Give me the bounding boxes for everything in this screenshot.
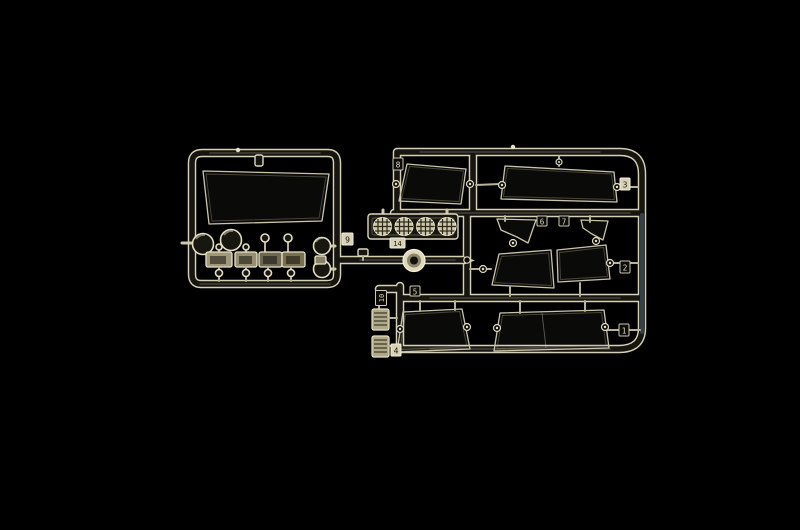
vent-window-right <box>581 220 608 240</box>
gate-boss <box>614 184 621 191</box>
lower-window-right <box>494 310 609 351</box>
part-tag-4-label: 4 <box>394 347 399 356</box>
gate-boss <box>393 181 400 188</box>
lamp-lower-stems <box>216 267 295 281</box>
spotlight-lens <box>417 218 435 236</box>
spotlight-lens <box>374 218 392 236</box>
headlight-lens <box>221 230 242 251</box>
part-tag-5: 5 <box>410 286 420 297</box>
part-tag-14-label: 14 <box>393 240 401 248</box>
part-tag-1-label: 1 <box>622 327 627 336</box>
gate-nub <box>511 145 515 149</box>
sprue-photo: 9 14 8 6 7 3 2 1 <box>0 0 800 530</box>
lamp-pin <box>216 244 222 250</box>
lower-window-left <box>397 309 470 352</box>
windshield-pane <box>203 171 329 224</box>
door-window-left <box>492 250 554 288</box>
part-tag-6: 6 <box>537 216 547 227</box>
lamp-lens-core <box>286 256 300 264</box>
part-tag-9-label: 9 <box>345 236 350 245</box>
top-gate-tab <box>255 155 263 166</box>
lamp-lens-core <box>263 256 277 264</box>
part-tag-7-label: 7 <box>562 218 567 227</box>
left-frame-parts <box>182 155 335 281</box>
gate-boss <box>602 324 609 331</box>
part-tag-7: 7 <box>559 216 569 227</box>
ribbed-lens <box>372 309 389 330</box>
part-tag-3: 3 <box>620 178 630 190</box>
part-tag-10: 10 <box>376 291 387 306</box>
gate-boss <box>467 181 474 188</box>
gate-boss <box>494 325 501 332</box>
gate-boss <box>593 238 600 245</box>
spotlight-lens <box>395 218 413 236</box>
photo-canvas: 9 14 8 6 7 3 2 1 <box>0 0 800 530</box>
part-tag-9: 9 <box>342 233 353 245</box>
window-stub <box>476 184 500 185</box>
vent-window-left <box>497 219 536 243</box>
gate-boss <box>464 257 470 263</box>
gate-boss <box>499 182 506 189</box>
gate-nub <box>236 148 240 152</box>
part-tag-1: 1 <box>619 324 629 336</box>
part-tag-14: 14 <box>390 238 405 248</box>
part-tag-5-label: 5 <box>413 288 418 297</box>
gate-boss <box>510 240 517 247</box>
part-tag-2: 2 <box>620 261 630 273</box>
part-tag-8-label: 8 <box>396 161 401 170</box>
gate-boss <box>464 324 471 331</box>
part-tag-3-label: 3 <box>623 181 628 190</box>
lamp-pin <box>261 234 269 242</box>
small-clip-part <box>358 249 368 256</box>
gate-boss <box>556 159 562 165</box>
lamp-pin <box>284 234 292 242</box>
part-tag-4: 4 <box>391 344 401 356</box>
gate-boss <box>480 266 487 273</box>
beacon-ring-hole <box>410 257 418 265</box>
lamp-pin <box>243 244 249 250</box>
small-block-part <box>315 256 326 264</box>
part-tag-2-label: 2 <box>623 264 628 273</box>
part-tag-8: 8 <box>393 158 403 170</box>
lamp-lens-core <box>239 256 252 264</box>
spotlight-lens <box>438 218 456 236</box>
part-tag-6-label: 6 <box>540 218 545 227</box>
gate-boss <box>607 260 614 267</box>
lamp-lens-core <box>210 256 226 264</box>
gate-boss <box>397 326 404 333</box>
part-tag-10-label: 10 <box>378 294 386 302</box>
ribbed-lens <box>372 336 389 357</box>
spotlight-bar <box>368 210 458 239</box>
